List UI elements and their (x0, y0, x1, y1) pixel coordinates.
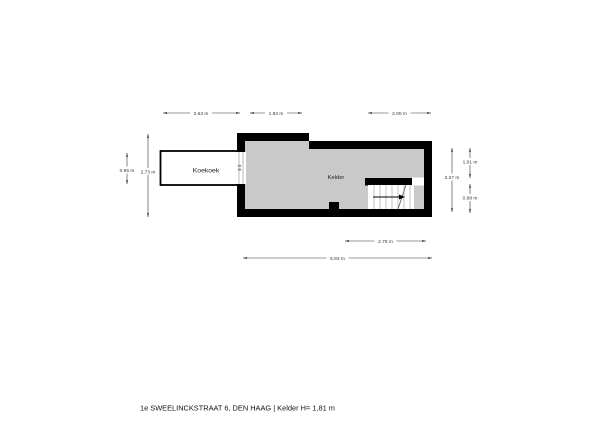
dimension-label: 2.27 m (445, 175, 460, 181)
window-tick (238, 169, 241, 171)
stair-door-opening (412, 178, 424, 186)
dimension-label: 1.82 m (269, 111, 284, 117)
wall-opening (237, 152, 247, 184)
room-label-kelder: Kelder (328, 175, 345, 181)
stair-wall (365, 178, 412, 186)
dimension-label: 5.93 m (330, 256, 345, 262)
floorplan-drawing: 2.63 m 1.82 m 2.00 m 0.95 m 2.73 m (0, 0, 600, 424)
footer-caption: 1e SWEELINCKSTRAAT 6, DEN HAAG | Kelder … (140, 404, 335, 413)
window-tick (238, 165, 241, 167)
room-label-koekoek: Koekoek (193, 168, 220, 175)
stairs (368, 185, 414, 209)
dimension-label: 1.01 m (463, 159, 478, 165)
dimension-label: 2.00 m (392, 111, 407, 117)
koekoek-kelder-opening (237, 152, 247, 184)
dimension-label: 2.78 m (378, 239, 393, 245)
dimension-label: 2.63 m (194, 111, 209, 117)
dimension-label: 2.73 m (141, 169, 156, 175)
wall-stub (329, 202, 339, 210)
floorplan-canvas: 2.63 m 1.82 m 2.00 m 0.95 m 2.73 m (0, 0, 600, 424)
dimension-label: 0.95 m (120, 168, 135, 174)
dimension-label: 0.98 m (463, 195, 478, 201)
